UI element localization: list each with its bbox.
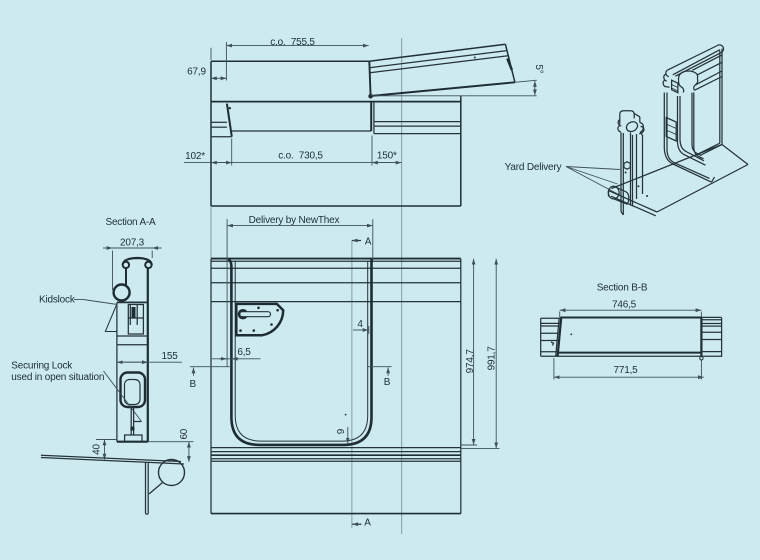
- svg-text:Section A-A: Section A-A: [105, 217, 156, 228]
- svg-text:746,5: 746,5: [612, 299, 637, 310]
- svg-text:5°: 5°: [533, 64, 544, 73]
- svg-text:207,3: 207,3: [120, 237, 145, 248]
- svg-text:B: B: [384, 377, 391, 388]
- svg-text:4: 4: [357, 319, 363, 330]
- svg-text:155: 155: [162, 351, 179, 362]
- svg-text:991,7: 991,7: [487, 346, 498, 371]
- svg-text:771,5: 771,5: [613, 365, 638, 376]
- svg-text:Yard Delivery: Yard Delivery: [505, 162, 562, 173]
- svg-text:40: 40: [92, 444, 103, 455]
- svg-text:used in open situation: used in open situation: [11, 372, 104, 383]
- svg-text:c.o. 755,5: c.o. 755,5: [270, 37, 315, 48]
- svg-text:60: 60: [179, 428, 190, 439]
- svg-text:102*: 102*: [185, 151, 205, 162]
- svg-text:974,7: 974,7: [465, 349, 476, 374]
- svg-text:B: B: [190, 379, 197, 390]
- svg-text:Securing Lock: Securing Lock: [11, 361, 73, 372]
- svg-text:A: A: [364, 517, 371, 528]
- svg-text:Section B-B: Section B-B: [597, 283, 648, 294]
- svg-text:Kidslock: Kidslock: [39, 295, 76, 306]
- svg-text:150*: 150*: [377, 151, 397, 162]
- svg-text:Delivery by NewThex: Delivery by NewThex: [249, 215, 340, 226]
- svg-text:A: A: [365, 237, 372, 248]
- svg-text:9: 9: [336, 428, 347, 434]
- svg-text:67,9: 67,9: [187, 66, 206, 77]
- svg-text:6,5: 6,5: [237, 347, 251, 358]
- svg-text:c.o. 730,5: c.o. 730,5: [278, 151, 323, 162]
